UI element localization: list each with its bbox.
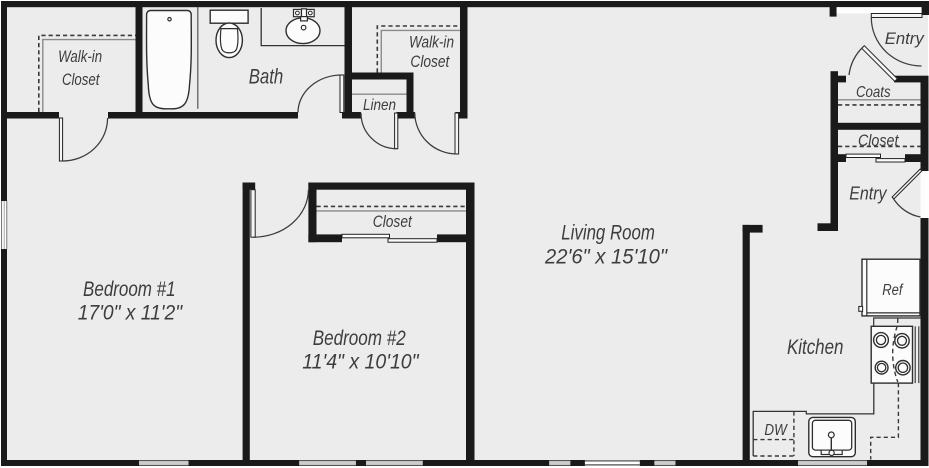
svg-text:11'4" x 10'10": 11'4" x 10'10"	[302, 351, 420, 374]
svg-text:Ref: Ref	[882, 282, 904, 299]
svg-text:Bedroom #2: Bedroom #2	[313, 327, 406, 350]
svg-text:Walk-in: Walk-in	[409, 34, 454, 52]
svg-text:Living Room: Living Room	[561, 222, 655, 245]
svg-text:Closet: Closet	[410, 53, 450, 71]
svg-text:17'0" x 11'2": 17'0" x 11'2"	[78, 302, 184, 325]
svg-text:DW: DW	[764, 422, 788, 439]
svg-text:Entry: Entry	[849, 184, 887, 204]
svg-text:Walk-in: Walk-in	[58, 48, 102, 66]
svg-text:Bedroom #1: Bedroom #1	[83, 278, 176, 301]
svg-text:Closet: Closet	[62, 71, 101, 89]
svg-text:Linen: Linen	[363, 97, 396, 114]
svg-text:22'6" x 15'10": 22'6" x 15'10"	[544, 246, 668, 269]
svg-text:Kitchen: Kitchen	[787, 335, 844, 359]
svg-text:Closet: Closet	[373, 213, 413, 231]
svg-text:Coats: Coats	[856, 84, 891, 101]
svg-text:Bath: Bath	[249, 65, 284, 88]
svg-text:Entry: Entry	[885, 29, 925, 48]
svg-text:Closet: Closet	[858, 132, 900, 150]
